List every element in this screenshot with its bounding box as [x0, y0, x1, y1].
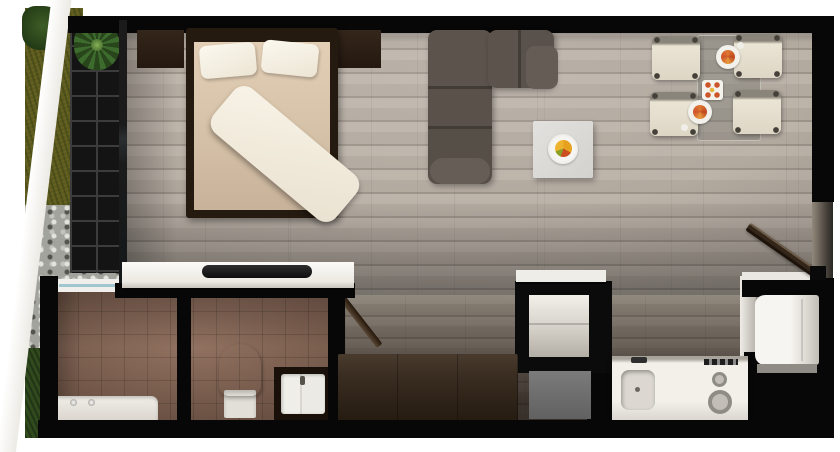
- wall-bathroom-left: [40, 276, 58, 422]
- nightstand-right: [335, 30, 381, 68]
- pillow: [260, 39, 319, 78]
- nightstand-left: [137, 30, 184, 68]
- gray-appliance: [529, 371, 591, 419]
- entry-door-jamb: [810, 266, 826, 280]
- cooktop-burner-large: [708, 390, 732, 414]
- storage-closet-top: [516, 270, 606, 282]
- bathroom-window: [54, 279, 120, 292]
- table-centerpiece: [702, 80, 723, 100]
- kitchen-faucet: [631, 357, 647, 363]
- cup: [681, 124, 688, 131]
- bathroom-partition-wall: [177, 296, 191, 420]
- cooktop-knobs: [704, 359, 738, 365]
- dining-chair-top-right: [734, 34, 782, 78]
- dining-chair-bottom-right: [733, 90, 781, 134]
- refrigerator-base: [757, 364, 817, 373]
- glass-wall-left: [119, 20, 127, 283]
- wall-bottom: [38, 420, 834, 438]
- refrigerator: [755, 295, 819, 365]
- sofa-end-cushion: [430, 158, 490, 184]
- tub-tap: [70, 399, 77, 406]
- plate-with-food: [688, 100, 712, 124]
- wall-right-upper: [812, 16, 834, 202]
- pillow: [199, 42, 258, 80]
- toilet: [219, 344, 261, 396]
- cup: [737, 42, 744, 49]
- kitchen-wall-top-edge: [742, 272, 816, 280]
- fruit: [555, 140, 572, 157]
- sofa-arm-cushion: [526, 46, 558, 89]
- bathroom-sink: [281, 374, 325, 414]
- bathtub: [50, 396, 158, 422]
- wardrobe: [338, 354, 518, 424]
- kitchen-sink: [621, 370, 655, 410]
- cooktop-burner-small: [712, 372, 727, 387]
- floorplan-render: [0, 0, 840, 452]
- dining-chair-top-left: [652, 36, 700, 80]
- plate-with-food: [716, 45, 740, 69]
- tub-tap: [88, 399, 95, 406]
- storage-closet-niche: [529, 295, 589, 357]
- desk-tray: [202, 265, 312, 278]
